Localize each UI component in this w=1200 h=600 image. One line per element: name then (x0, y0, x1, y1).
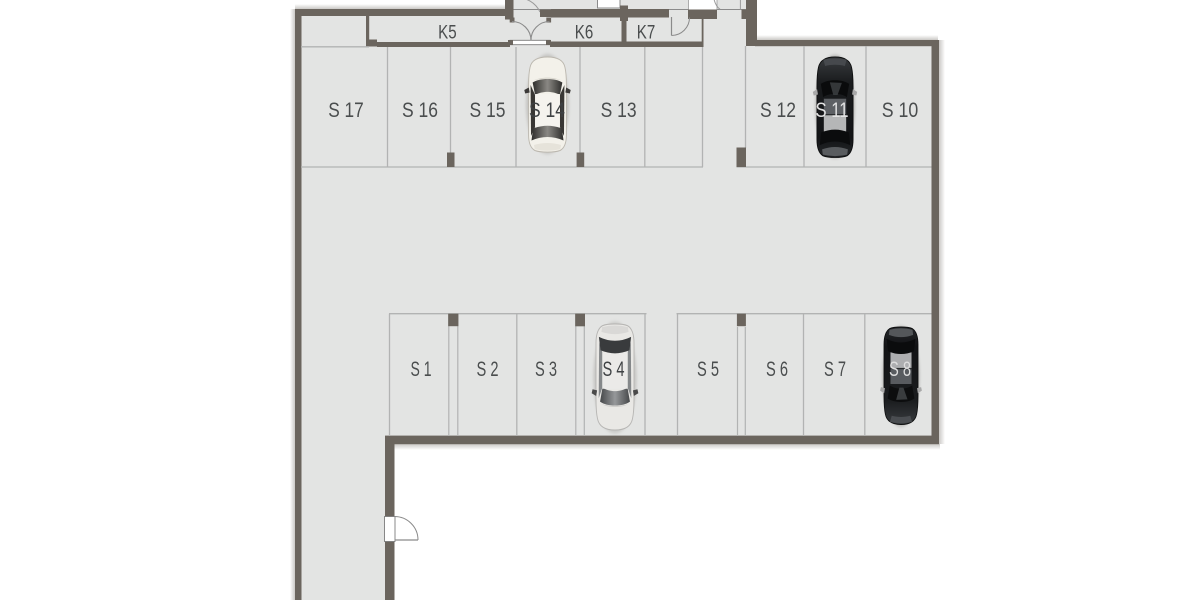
svg-text:K6: K6 (575, 22, 594, 43)
svg-text:S 10: S 10 (882, 99, 919, 122)
svg-text:S 4: S 4 (603, 358, 625, 381)
svg-text:S 3: S 3 (535, 358, 557, 381)
svg-text:S 2: S 2 (477, 358, 499, 381)
svg-text:S 17: S 17 (328, 99, 364, 122)
svg-text:S 1: S 1 (411, 358, 432, 381)
svg-text:S 7: S 7 (824, 358, 846, 381)
svg-text:K5: K5 (438, 22, 457, 43)
svg-text:S 11: S 11 (816, 99, 849, 122)
svg-text:S 15: S 15 (470, 99, 506, 122)
svg-text:S 12: S 12 (760, 99, 796, 122)
svg-text:S 6: S 6 (766, 358, 788, 381)
svg-text:K7: K7 (637, 22, 656, 43)
svg-text:S 5: S 5 (697, 358, 719, 381)
svg-text:S 13: S 13 (601, 99, 637, 122)
svg-text:S 14: S 14 (529, 99, 565, 122)
svg-text:S 8: S 8 (889, 358, 911, 381)
svg-text:S 16: S 16 (402, 99, 438, 122)
